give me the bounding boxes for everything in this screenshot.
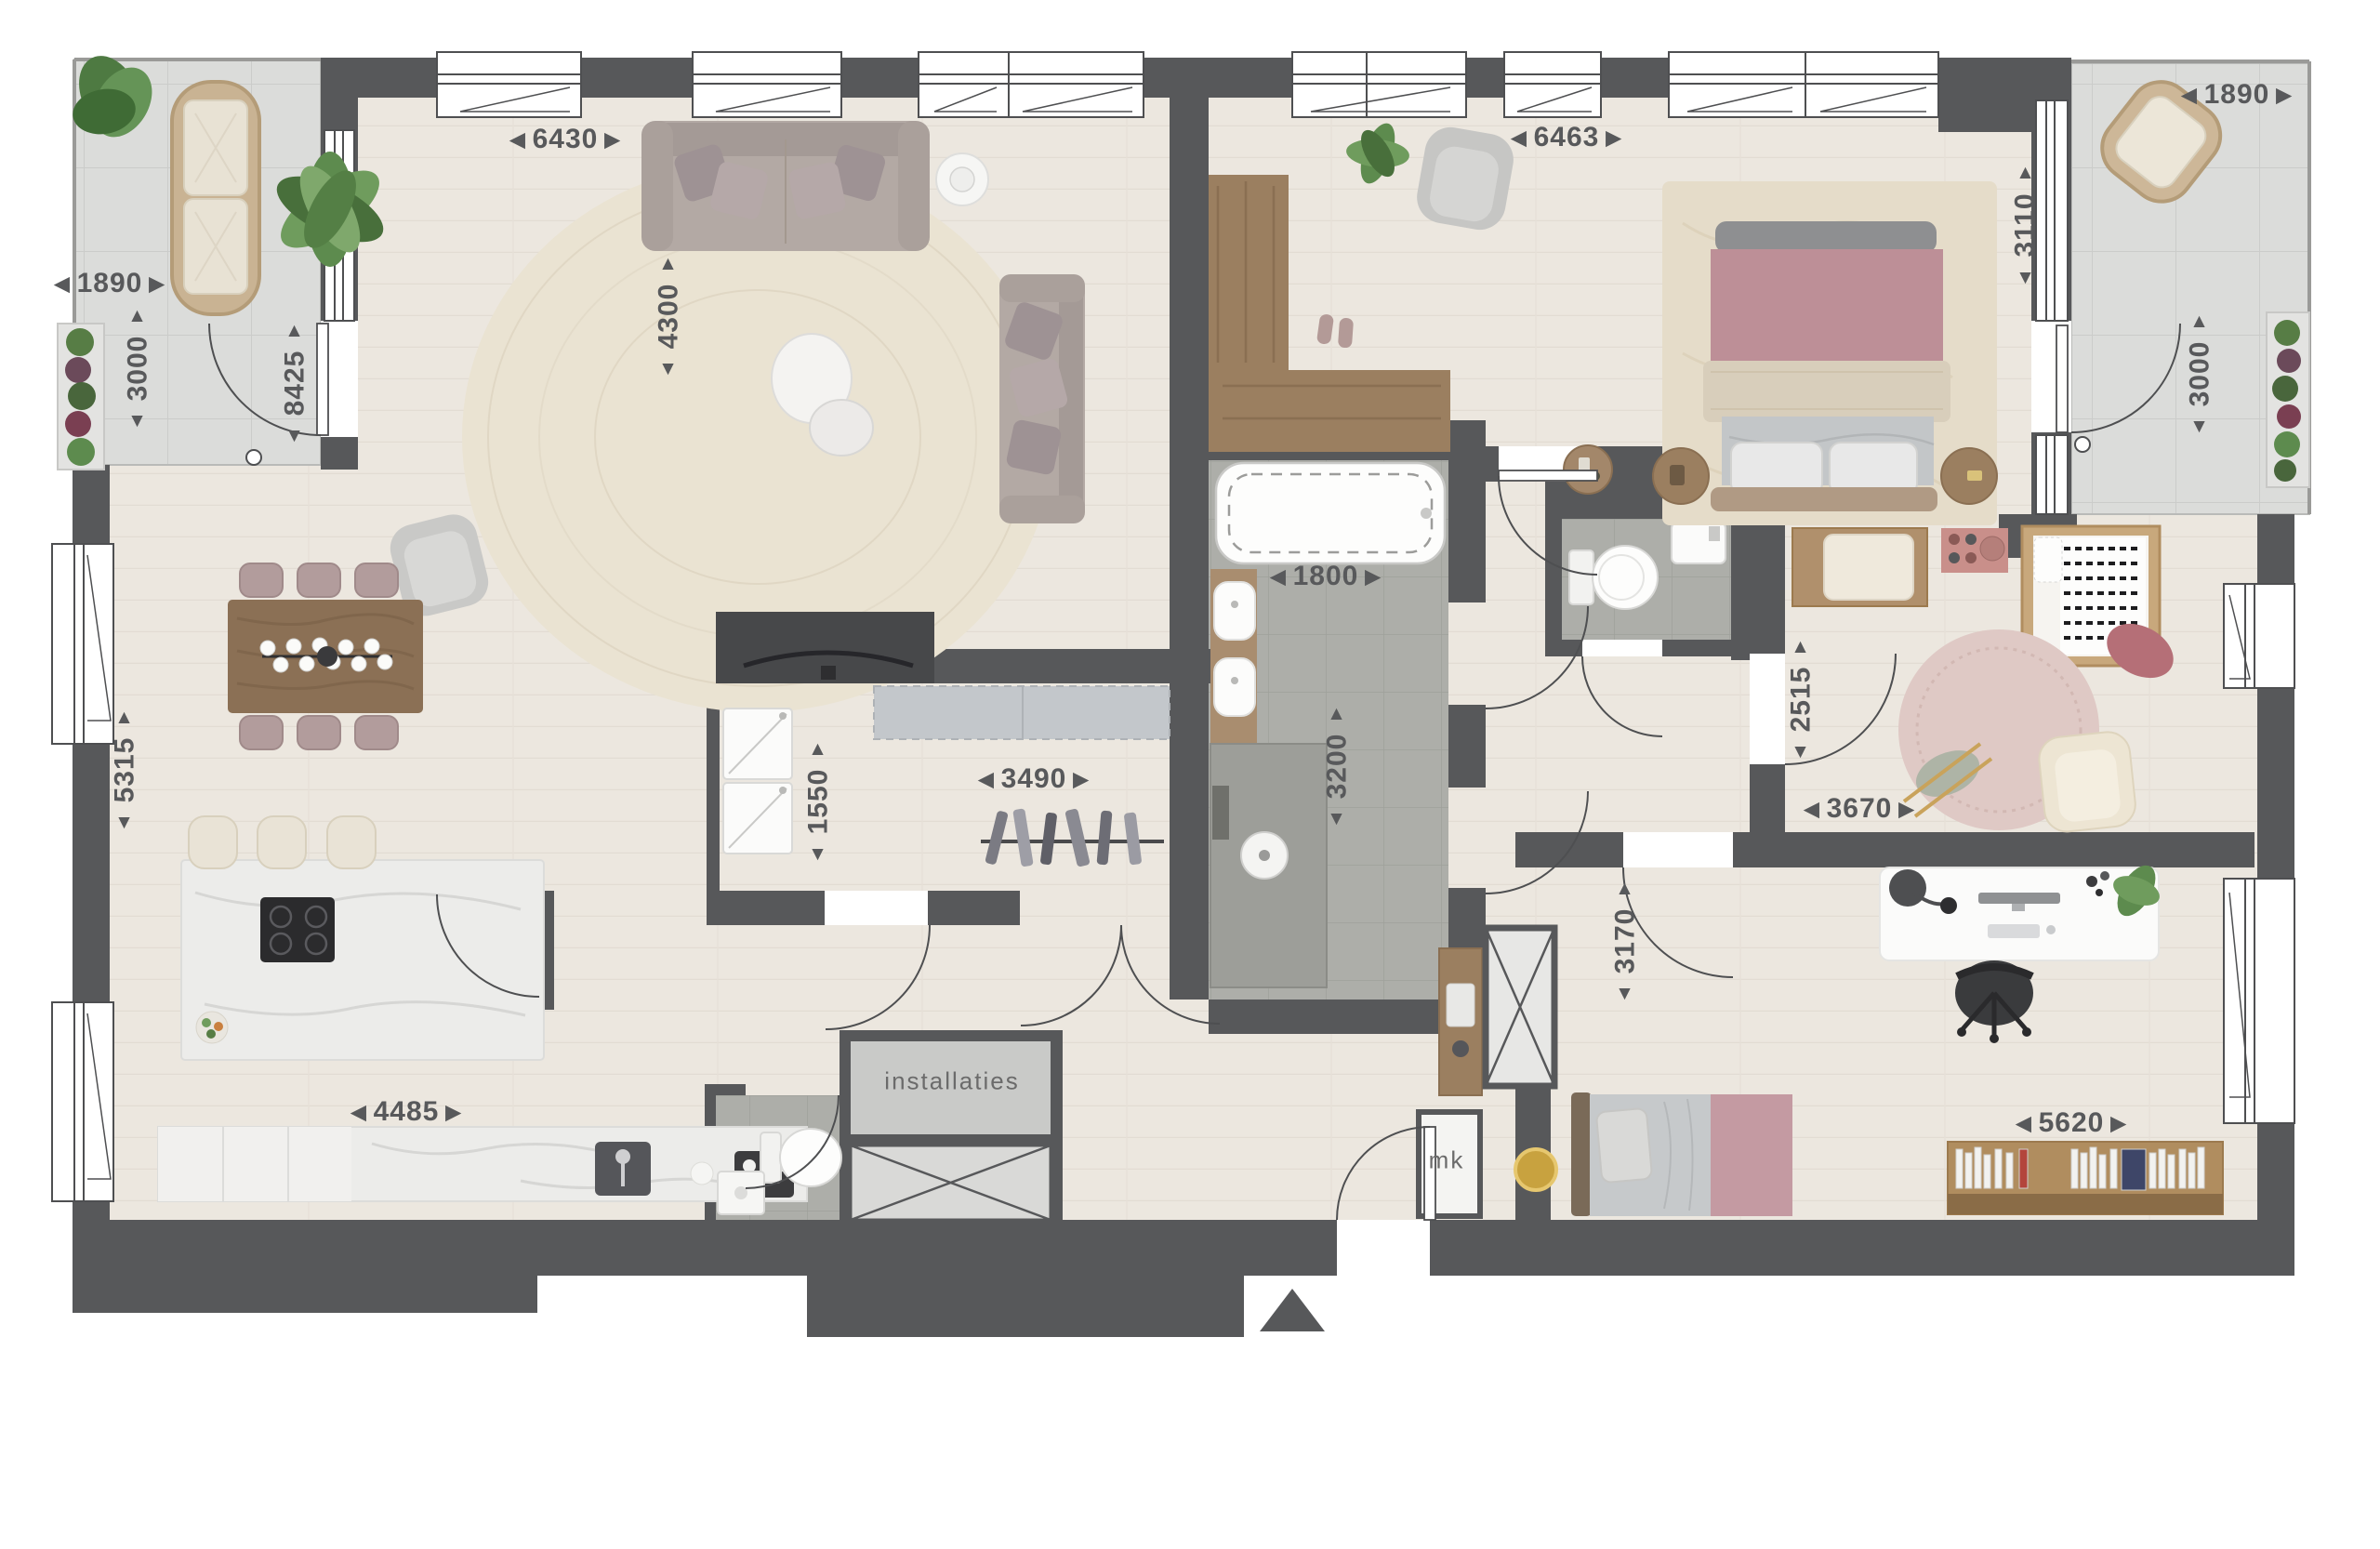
dimension-label-1890: ◀1890▶ — [54, 268, 165, 299]
dimension-label-5315: ▲5315▼ — [107, 708, 142, 832]
dimension-label-3000: ▲3000▼ — [2182, 311, 2217, 436]
dimension-label-2515: ▲2515▼ — [1783, 637, 1818, 761]
dimension-label-6463: ◀6463▶ — [1511, 122, 1621, 153]
dimension-label-5620: ◀5620▶ — [2016, 1107, 2126, 1139]
dimension-label-3490: ◀3490▶ — [978, 763, 1089, 795]
dimension-label-6430: ◀6430▶ — [509, 124, 620, 155]
dimension-label-3670: ◀3670▶ — [1804, 793, 1914, 825]
dimension-label-8425: ▲8425▼ — [277, 321, 312, 445]
dimension-label-3200: ▲3200▼ — [1319, 704, 1355, 828]
room-label-mk: mk — [1429, 1146, 1465, 1175]
dimension-label-1890: ◀1890▶ — [2181, 79, 2292, 111]
room-label-installaties: installaties — [884, 1067, 1019, 1096]
floorplan-canvas: installaties mk ◀6430▶◀1890▶▲3000▼▲8425▼… — [0, 0, 2380, 1549]
dimension-label-4485: ◀4485▶ — [350, 1096, 461, 1128]
dimension-label-3110: ▲3110▼ — [2008, 163, 2043, 287]
dimension-label-3000: ▲3000▼ — [120, 306, 155, 430]
dimension-label-1800: ◀1800▶ — [1270, 561, 1381, 592]
dimension-label-1550: ▲1550▼ — [800, 739, 836, 864]
dimension-label-4300: ▲4300▼ — [651, 254, 686, 378]
dimension-label-3170: ▲3170▼ — [1607, 879, 1643, 1003]
labels-layer: installaties mk ◀6430▶◀1890▶▲3000▼▲8425▼… — [0, 0, 2380, 1549]
